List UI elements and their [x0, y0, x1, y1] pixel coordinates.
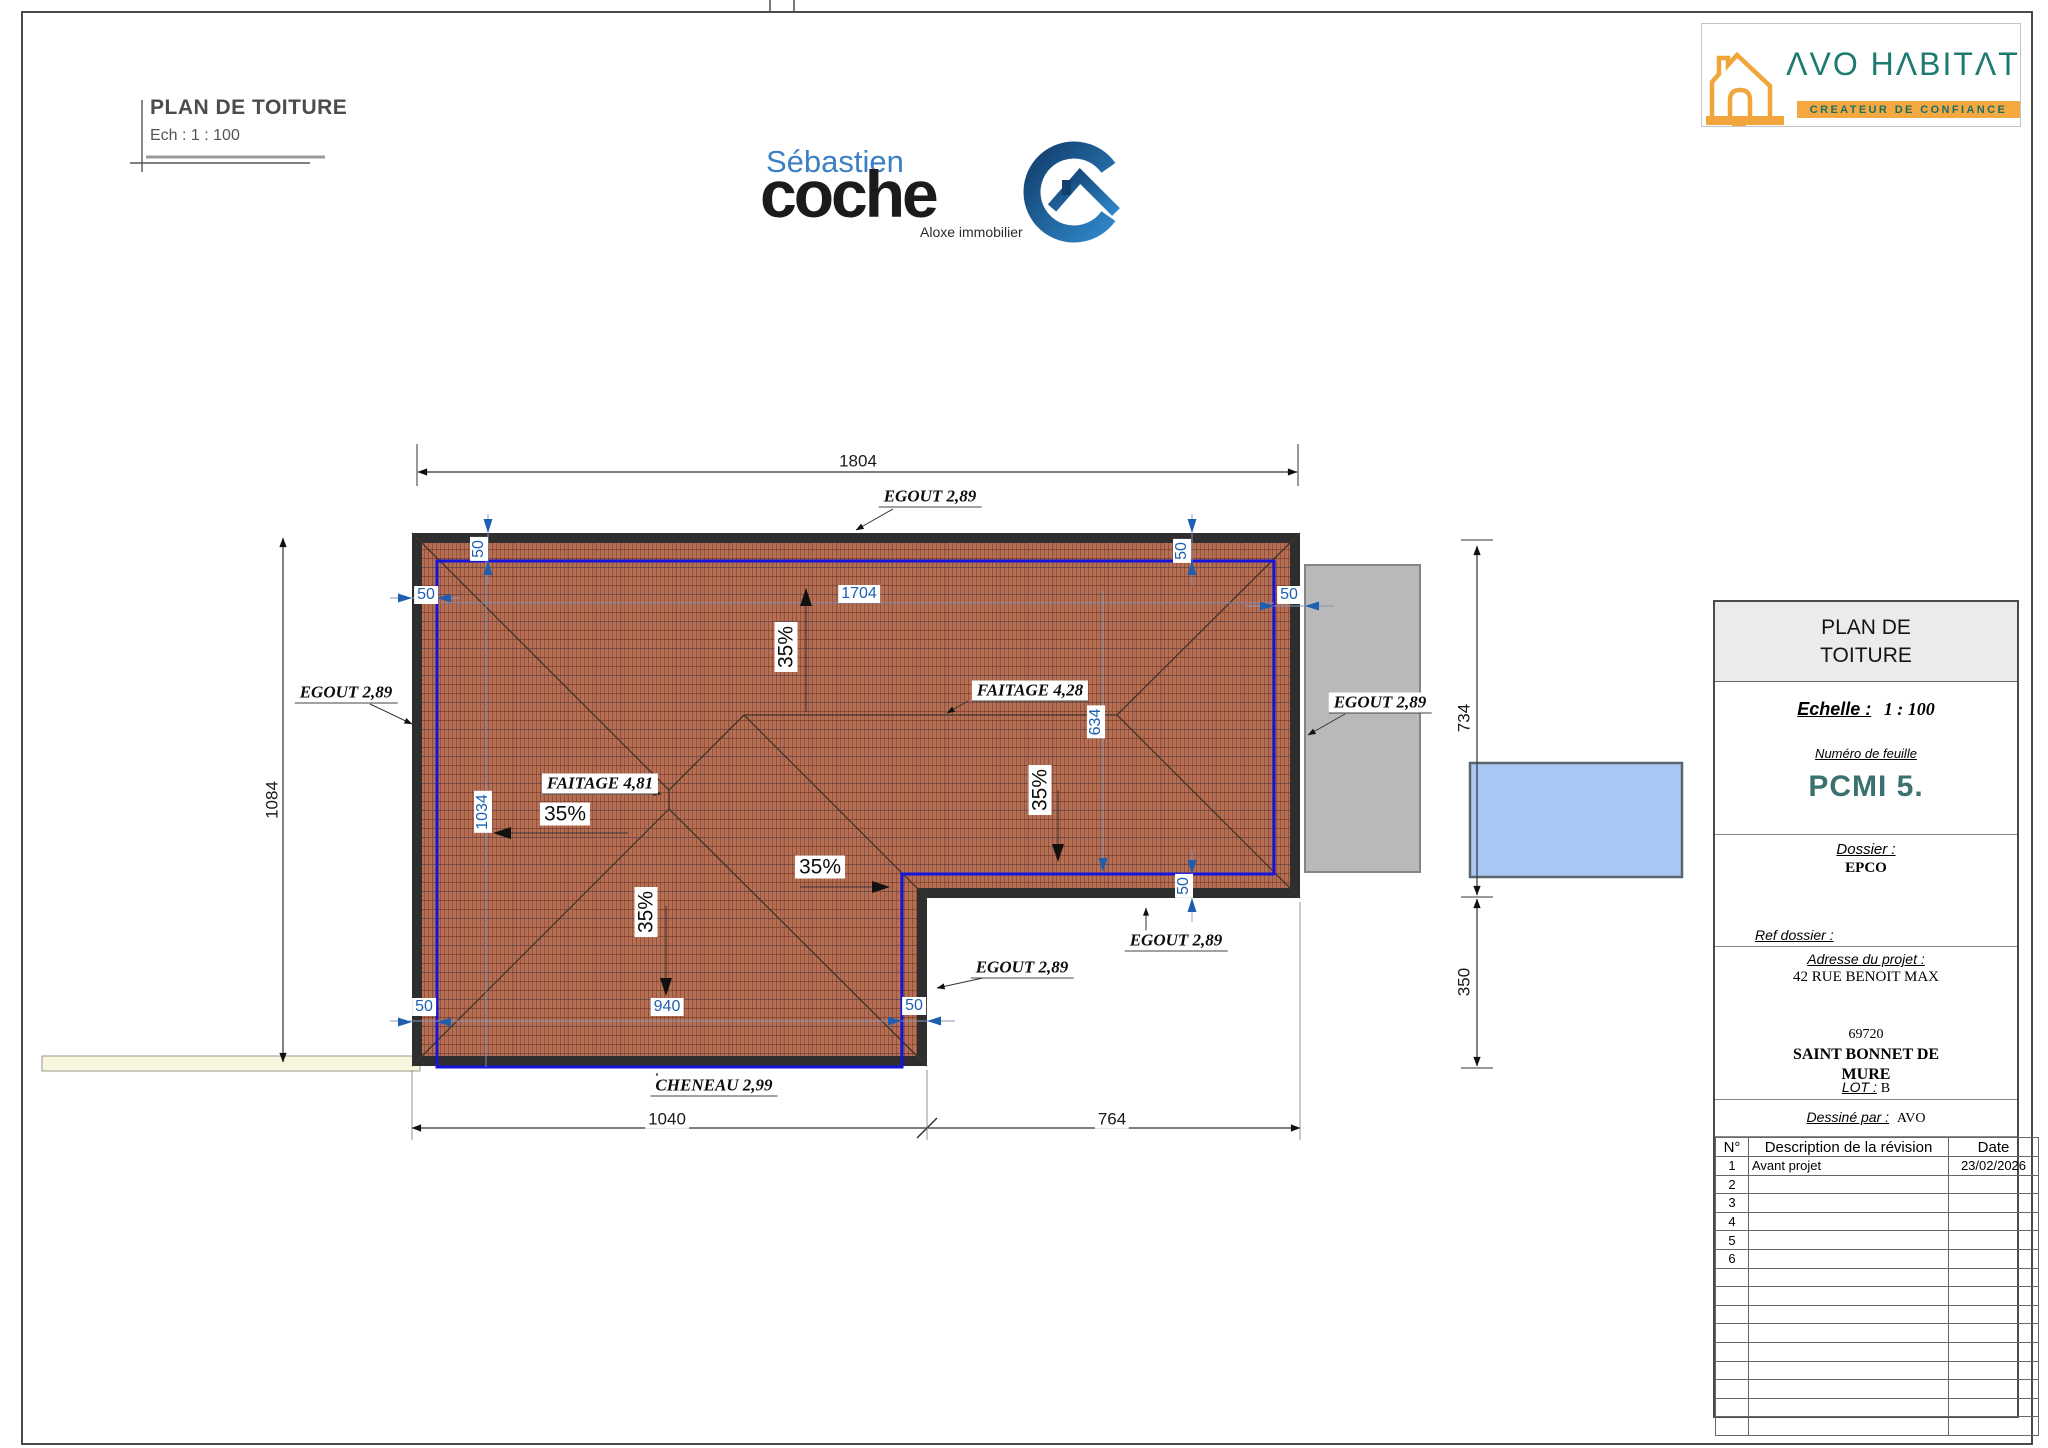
- title-block-title: PLAN DE TOITURE: [1786, 614, 1946, 669]
- title-block: PLAN DE TOITURE Echelle : 1 : 100 Numéro…: [1713, 600, 2019, 1418]
- dim-offset-50-tr-v: 50: [1173, 539, 1191, 563]
- dim-offset-50-tl-v: 50: [470, 537, 488, 561]
- egout-label-top: EGOUT 2,89: [879, 487, 982, 508]
- sheet-number-label: Numéro de feuille: [1815, 746, 1917, 761]
- dim-bottom-right: 764: [1095, 1110, 1129, 1129]
- scale-label: Echelle :: [1797, 699, 1871, 719]
- ref-dossier-label: Ref dossier :: [1755, 927, 1834, 943]
- dim-total-height: 1084: [263, 778, 282, 822]
- cheneau-label: CHENEAU 2,99: [650, 1076, 777, 1097]
- dim-wall-right: 634: [1087, 706, 1105, 739]
- revision-row: 6: [1716, 1249, 2039, 1268]
- avo-logo-banner: CREATEUR DE CONFIANCE: [1797, 101, 2020, 118]
- sheet: { "corner": { "title": "PLAN DE TOITURE"…: [0, 0, 2048, 1448]
- title-block-scale-section: Echelle : 1 : 100 Numéro de feuille PCMI…: [1715, 682, 2017, 835]
- title-block-header: PLAN DE TOITURE: [1715, 602, 2017, 682]
- revision-row-empty: [1716, 1417, 2039, 1436]
- roof: [412, 533, 1300, 1067]
- lot-value: B: [1881, 1081, 1890, 1096]
- revision-row-empty: [1716, 1268, 2039, 1287]
- pool-rect: [1470, 763, 1682, 877]
- avo-logo-tagline: CREATEUR DE CONFIANCE: [1810, 104, 2007, 116]
- drawing-scale: Ech : 1 : 100: [150, 127, 240, 145]
- egout-label-rightwing: EGOUT 2,89: [1125, 931, 1228, 952]
- revision-row-empty: [1716, 1361, 2039, 1380]
- slope-label-top: 35%: [775, 622, 798, 672]
- revision-row: 3: [1716, 1194, 2039, 1213]
- avo-house-icon: [1706, 30, 1786, 126]
- revision-row-empty: [1716, 1305, 2039, 1324]
- address-line1: 42 RUE BENOIT MAX: [1793, 969, 1939, 986]
- dim-offset-50-tl-h: 50: [414, 586, 438, 604]
- coche-logo-name: coche: [760, 156, 936, 232]
- dim-wall-top: 1704: [838, 585, 880, 603]
- drawing-title: PLAN DE TOITURE: [150, 96, 347, 120]
- revision-row: 2: [1716, 1175, 2039, 1194]
- rev-col-desc: Description de la révision: [1749, 1138, 1949, 1157]
- egout-label-left: EGOUT 2,89: [295, 683, 398, 704]
- revision-header-row: N° Description de la révision Date: [1716, 1138, 2039, 1157]
- dim-offset-50-tr-h: 50: [1277, 586, 1301, 604]
- rev-col-date: Date: [1949, 1138, 2039, 1157]
- dim-total-width: 1804: [836, 452, 880, 471]
- slope-label-center: 35%: [795, 856, 845, 879]
- avo-logo-name: ΛVO HΛBITΛT: [1782, 46, 2024, 83]
- slope-label-left: 35%: [540, 803, 590, 826]
- dim-right-upper: 734: [1455, 701, 1474, 735]
- revision-row: 4: [1716, 1212, 2039, 1231]
- sheet-number: PCMI 5.: [1808, 770, 1923, 804]
- dim-offset-50-rw: 50: [1175, 874, 1193, 898]
- revision-row: 5: [1716, 1231, 2039, 1250]
- revision-row-empty: [1716, 1287, 2039, 1306]
- scale-value: 1 : 100: [1884, 699, 1935, 719]
- faitage-label-secondary: FAITAGE 4,28: [972, 681, 1088, 702]
- dim-offset-50-notch: 50: [902, 997, 926, 1015]
- egout-label-right: EGOUT 2,89: [1329, 693, 1432, 714]
- dim-wall-bottom: 940: [651, 998, 684, 1016]
- rev-col-num: N°: [1716, 1138, 1749, 1157]
- dossier-label: Dossier :: [1836, 841, 1895, 858]
- slope-label-right: 35%: [1029, 765, 1052, 815]
- lot-label: LOT :: [1842, 1079, 1877, 1095]
- dim-right-lower: 350: [1455, 965, 1474, 999]
- coche-logo-tagline: Aloxe immobilier: [920, 224, 1023, 240]
- title-block-address-section: Adresse du projet : 42 RUE BENOIT MAX 69…: [1715, 947, 2017, 1100]
- dim-wall-left: 1034: [474, 791, 492, 833]
- author-value: AVO: [1897, 1111, 1926, 1126]
- dossier-value: EPCO: [1845, 860, 1887, 877]
- revision-table: N° Description de la révision Date 1Avan…: [1715, 1137, 2039, 1436]
- coche-logo-icon: [1022, 134, 1126, 248]
- dim-bottom-left: 1040: [645, 1110, 689, 1129]
- revision-row-empty: [1716, 1342, 2039, 1361]
- author-label: Dessiné par :: [1807, 1109, 1889, 1125]
- revision-row-empty: [1716, 1380, 2039, 1399]
- address-label: Adresse du projet :: [1807, 951, 1925, 967]
- terrace-slab: [1305, 565, 1420, 872]
- faitage-label-main: FAITAGE 4,81: [542, 774, 658, 795]
- slope-label-bottom: 35%: [635, 887, 658, 937]
- egout-label-notch: EGOUT 2,89: [971, 958, 1074, 979]
- title-block-dossier-section: Dossier : EPCO Ref dossier :: [1715, 835, 2017, 947]
- address-zip: 69720: [1849, 1027, 1884, 1043]
- boundary-strip: [42, 1056, 420, 1071]
- dim-offset-50-bl: 50: [412, 998, 436, 1016]
- revision-row: 1Avant projet23/02/2026: [1716, 1157, 2039, 1176]
- title-block-author-section: Dessiné par : AVO: [1715, 1100, 2017, 1137]
- revision-table-wrap: N° Description de la révision Date 1Avan…: [1715, 1137, 2017, 1420]
- revision-row-empty: [1716, 1398, 2039, 1417]
- revision-row-empty: [1716, 1324, 2039, 1343]
